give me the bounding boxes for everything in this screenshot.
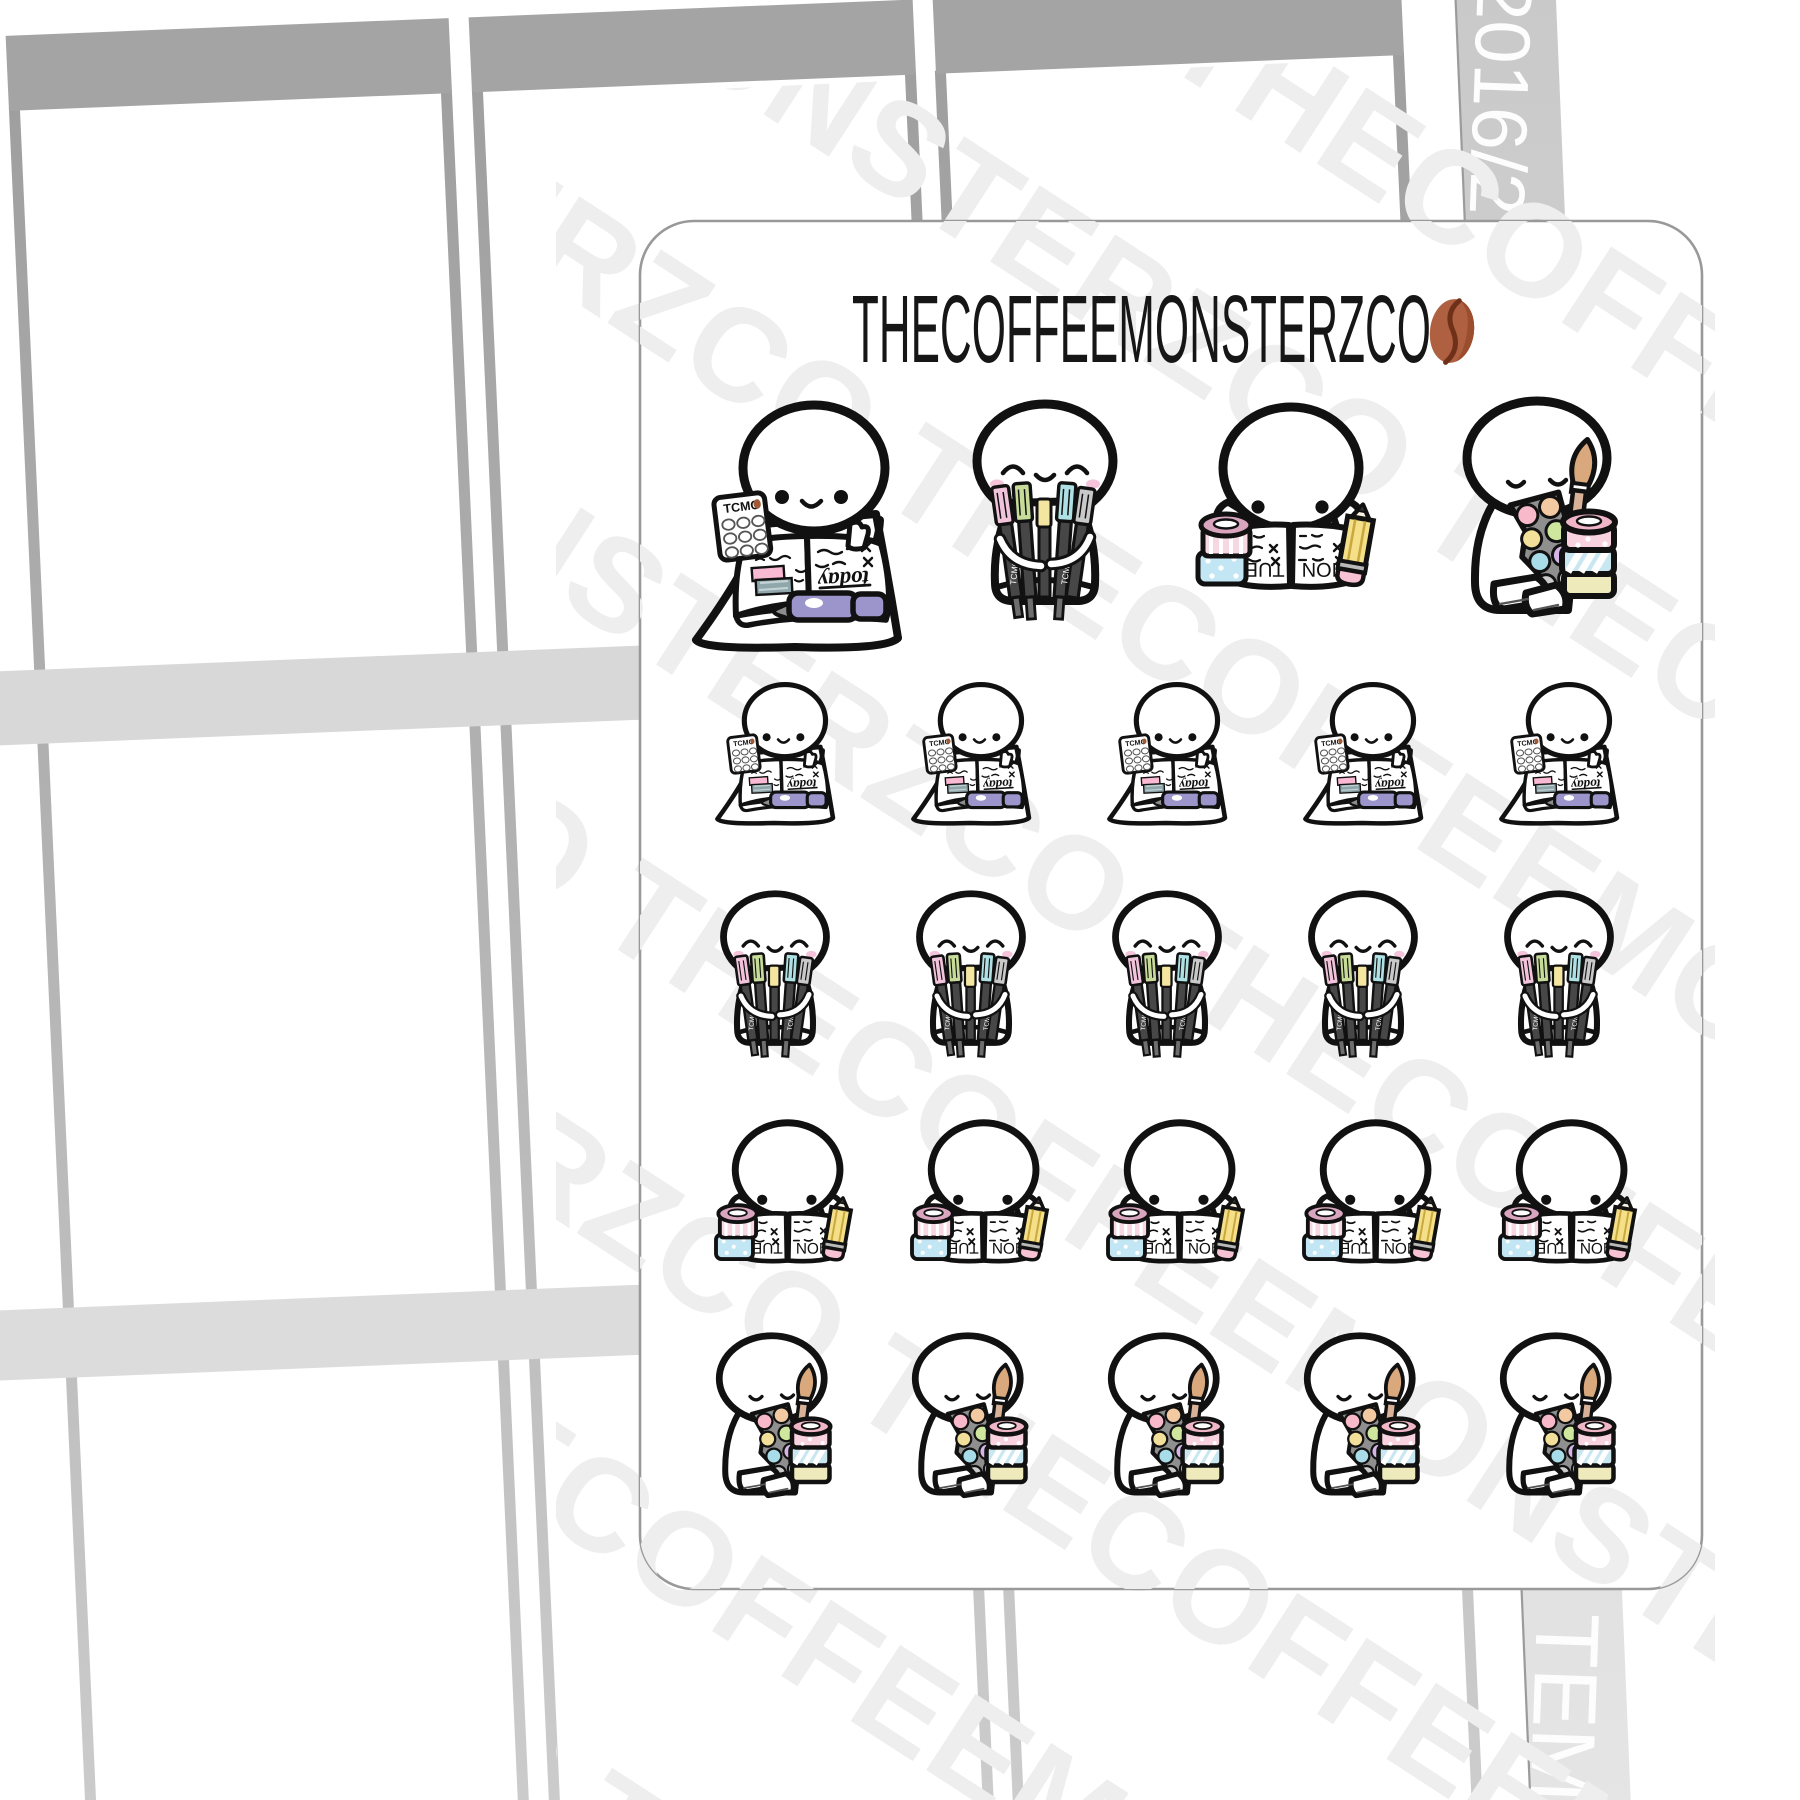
svg-text:THECOFFEEMONSTERZCO: THECOFFEEMONSTERZCO — [852, 276, 1431, 383]
